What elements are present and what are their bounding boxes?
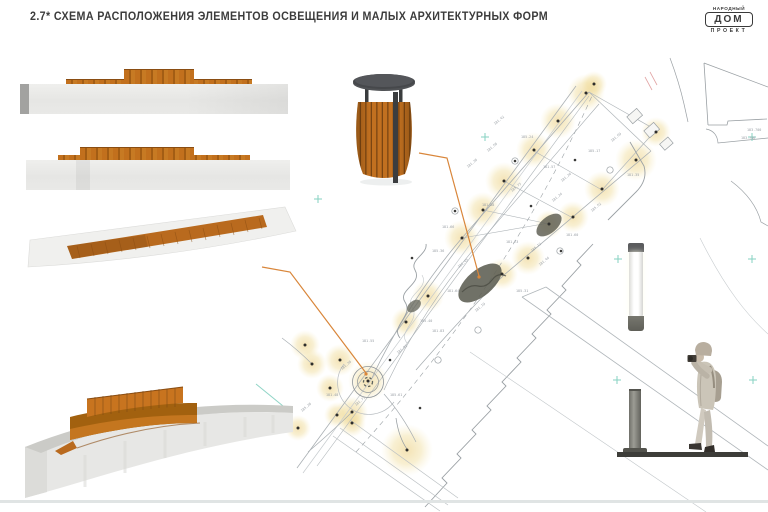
elevation-mark: 181.55 (362, 339, 374, 343)
lamp-dot (461, 237, 464, 240)
lamp-dot (336, 414, 339, 417)
elevation-mark: 181.48 (326, 393, 338, 397)
lamp-dot (533, 149, 536, 152)
lamp-dot (406, 449, 409, 452)
elevation-mark: 183.706 (741, 136, 755, 140)
lamp-dot (503, 180, 506, 183)
bin-metal-post (393, 92, 398, 183)
back-leg (704, 410, 712, 447)
elevation-mark: 181.35 (627, 173, 639, 177)
slide-edge (0, 500, 768, 503)
elevation-mark: 181.24 (551, 192, 563, 203)
elevation-mark: 185.31 (516, 289, 528, 293)
bench2-shading (76, 160, 90, 190)
elevation-mark: 185.40 (420, 319, 432, 323)
lamp-dot (557, 120, 560, 123)
presentation-slide: 181.42185.24181.38181.57185.73181.88181.… (0, 0, 768, 512)
elevation-mark: 185.24 (521, 135, 533, 139)
elevation-mark: 185.17 (588, 149, 600, 153)
lamp-dot (574, 159, 577, 162)
lamp-dot (405, 321, 408, 324)
lamp-dot (427, 295, 430, 298)
elevation-mark: 181.73 (506, 240, 518, 244)
lamp-dot (311, 363, 314, 366)
lamp-dot (419, 407, 422, 410)
lamp-dot (572, 216, 575, 219)
bench1-wood-block (124, 69, 194, 85)
grid-cross (614, 255, 622, 263)
grid-cross (749, 376, 757, 384)
narodny-dom-proekt-logo: НАРОДНЫЙ ДОМ ПРОЕКТ (699, 6, 759, 34)
lamp-dot (329, 387, 332, 390)
elevation-mark: 181.66 (442, 225, 454, 229)
logo-top-text: НАРОДНЫЙ (699, 6, 759, 11)
lamp-dot (389, 359, 392, 362)
bin-ground-shadow (360, 179, 412, 186)
beanie-hat (695, 342, 712, 356)
bench1-shading (29, 84, 288, 114)
lamp-dot (482, 209, 485, 212)
lamp-dot (548, 223, 551, 226)
elevation-mark: 181.38 (466, 158, 478, 169)
front-shoe (689, 443, 702, 450)
grid-cross (481, 133, 489, 141)
lamp-dot (585, 92, 588, 95)
litter-bin-render (350, 70, 440, 190)
elevation-mark: 185.61 (390, 393, 402, 397)
logo-box-text: ДОМ (705, 12, 753, 27)
elevation-mark: 181.26 (560, 172, 572, 183)
bench-curved-perspective-view (15, 385, 300, 505)
bench2-concrete-slab (26, 160, 290, 190)
elevation-mark: 181.57 (543, 165, 555, 169)
grid-cross (314, 195, 322, 203)
lamp-dot (351, 411, 354, 414)
lamp-dot (304, 344, 307, 347)
elevation-mark: 181.92 (396, 344, 408, 355)
elevation-mark: 181.88 (482, 203, 494, 207)
logo-bottom-text: ПРОЕКТ (699, 28, 759, 34)
elevation-mark: 181.64 (447, 289, 459, 293)
elevation-mark: 183.700 (747, 128, 761, 132)
elevation-mark: 181.60 (566, 233, 578, 237)
lamp-dot (635, 159, 638, 162)
lamp-dot (501, 273, 504, 276)
lamp-dot (514, 160, 517, 163)
lamp-dot (601, 188, 604, 191)
camera-lens (688, 356, 693, 361)
elevation-mark: 181.69 (610, 132, 622, 143)
light-pole (629, 389, 641, 452)
elevation-mark: 181.42 (493, 115, 505, 126)
photographer-scale-figure (668, 336, 728, 458)
elevation-mark: 181.58 (486, 142, 498, 153)
light-tube-top-cap (628, 243, 644, 252)
elevation-mark: 185.36 (432, 249, 444, 253)
bench1-end-cap (20, 84, 29, 114)
grid-cross (613, 376, 621, 384)
lamp-dot (655, 131, 658, 134)
bench-straight-side-view-1 (20, 67, 288, 114)
elevation-mark: 185.28 (300, 402, 312, 413)
light-tube-bottom-cap (628, 316, 644, 331)
slide-title: 2.7* СХЕМА РАСПОЛОЖЕНИЯ ЭЛЕМЕНТОВ ОСВЕЩЕ… (30, 11, 548, 23)
lamp-dot (367, 380, 370, 383)
lamp-dot (454, 210, 457, 213)
lamp-dot (560, 250, 563, 253)
lamp-dot (351, 422, 354, 425)
bench-straight-side-view-2 (20, 145, 290, 193)
lamp-dot (530, 205, 533, 208)
lamp-dot (411, 257, 414, 260)
lamp-dot (339, 359, 342, 362)
bench-curved-top-view (15, 200, 305, 280)
lamp-dot (593, 83, 596, 86)
elevation-mark: 181.83 (432, 329, 444, 333)
light-tube-body (629, 252, 643, 316)
back-shoe (704, 445, 715, 452)
grid-cross (748, 255, 756, 263)
lamp-dot (527, 257, 530, 260)
